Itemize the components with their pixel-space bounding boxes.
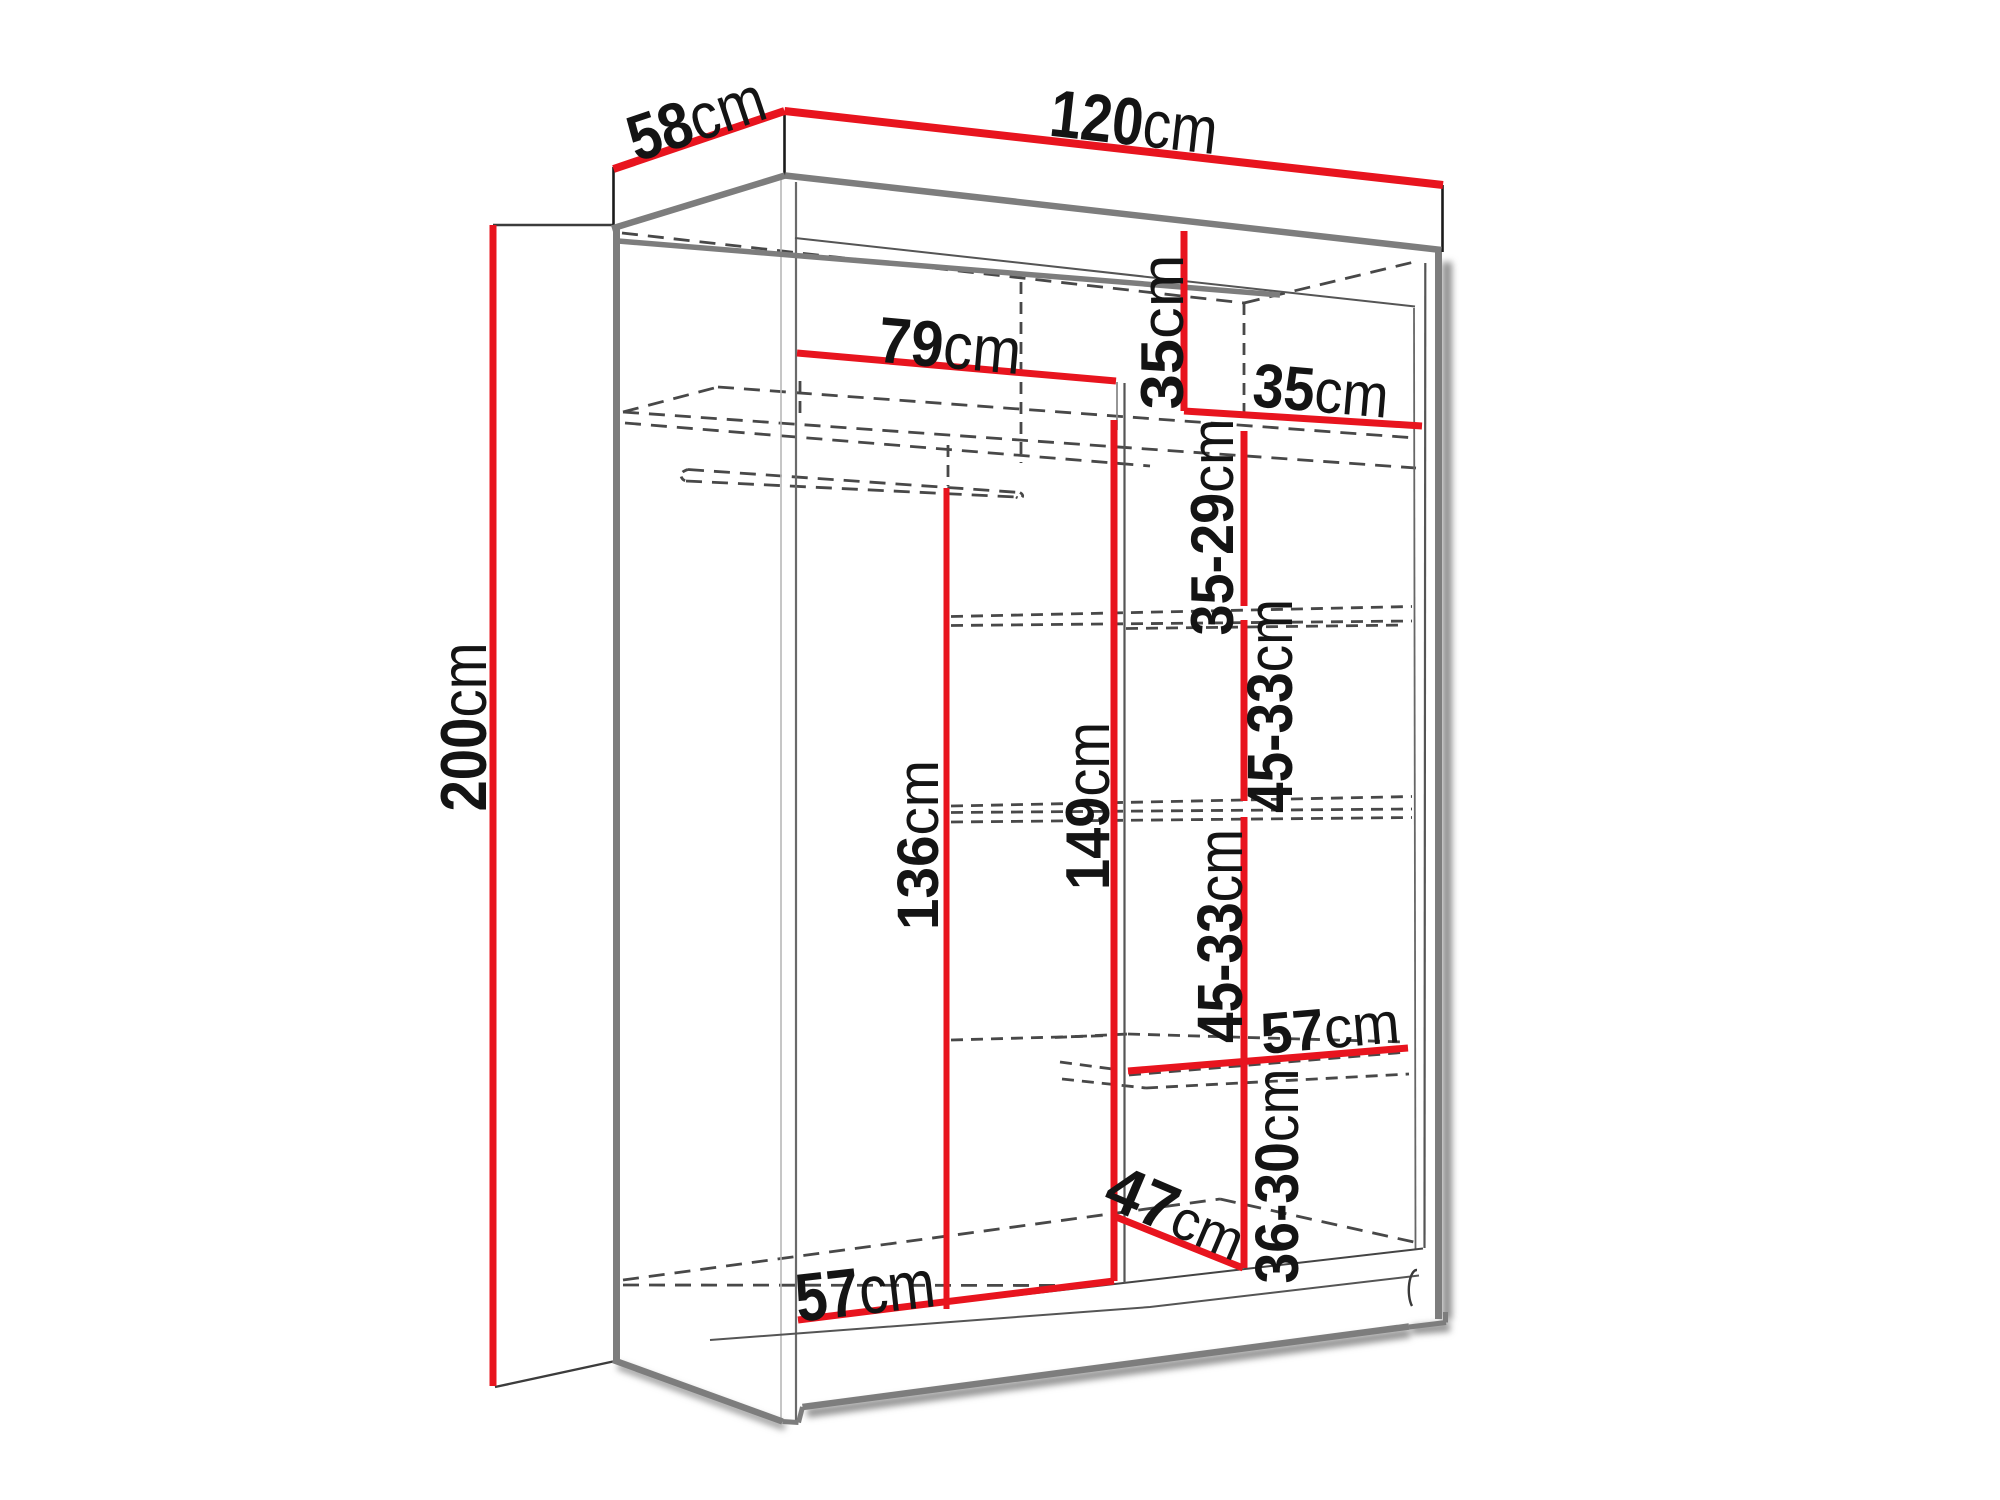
svg-text:45-33cm: 45-33cm	[1234, 599, 1306, 813]
svg-text:136cm: 136cm	[886, 760, 951, 930]
svg-text:120cm: 120cm	[1046, 76, 1221, 169]
svg-text:35cm: 35cm	[1129, 255, 1196, 410]
svg-text:57cm: 57cm	[1258, 990, 1402, 1067]
svg-text:57cm: 57cm	[791, 1245, 939, 1336]
svg-text:47cm: 47cm	[1095, 1150, 1257, 1275]
svg-text:149cm: 149cm	[1054, 722, 1123, 890]
svg-text:35cm: 35cm	[1250, 351, 1391, 432]
svg-text:200cm: 200cm	[427, 643, 500, 812]
svg-text:79cm: 79cm	[876, 303, 1025, 388]
svg-text:58cm: 58cm	[618, 61, 775, 175]
svg-text:36-30cm: 36-30cm	[1243, 1069, 1311, 1284]
svg-text:45-33cm: 45-33cm	[1184, 829, 1256, 1043]
